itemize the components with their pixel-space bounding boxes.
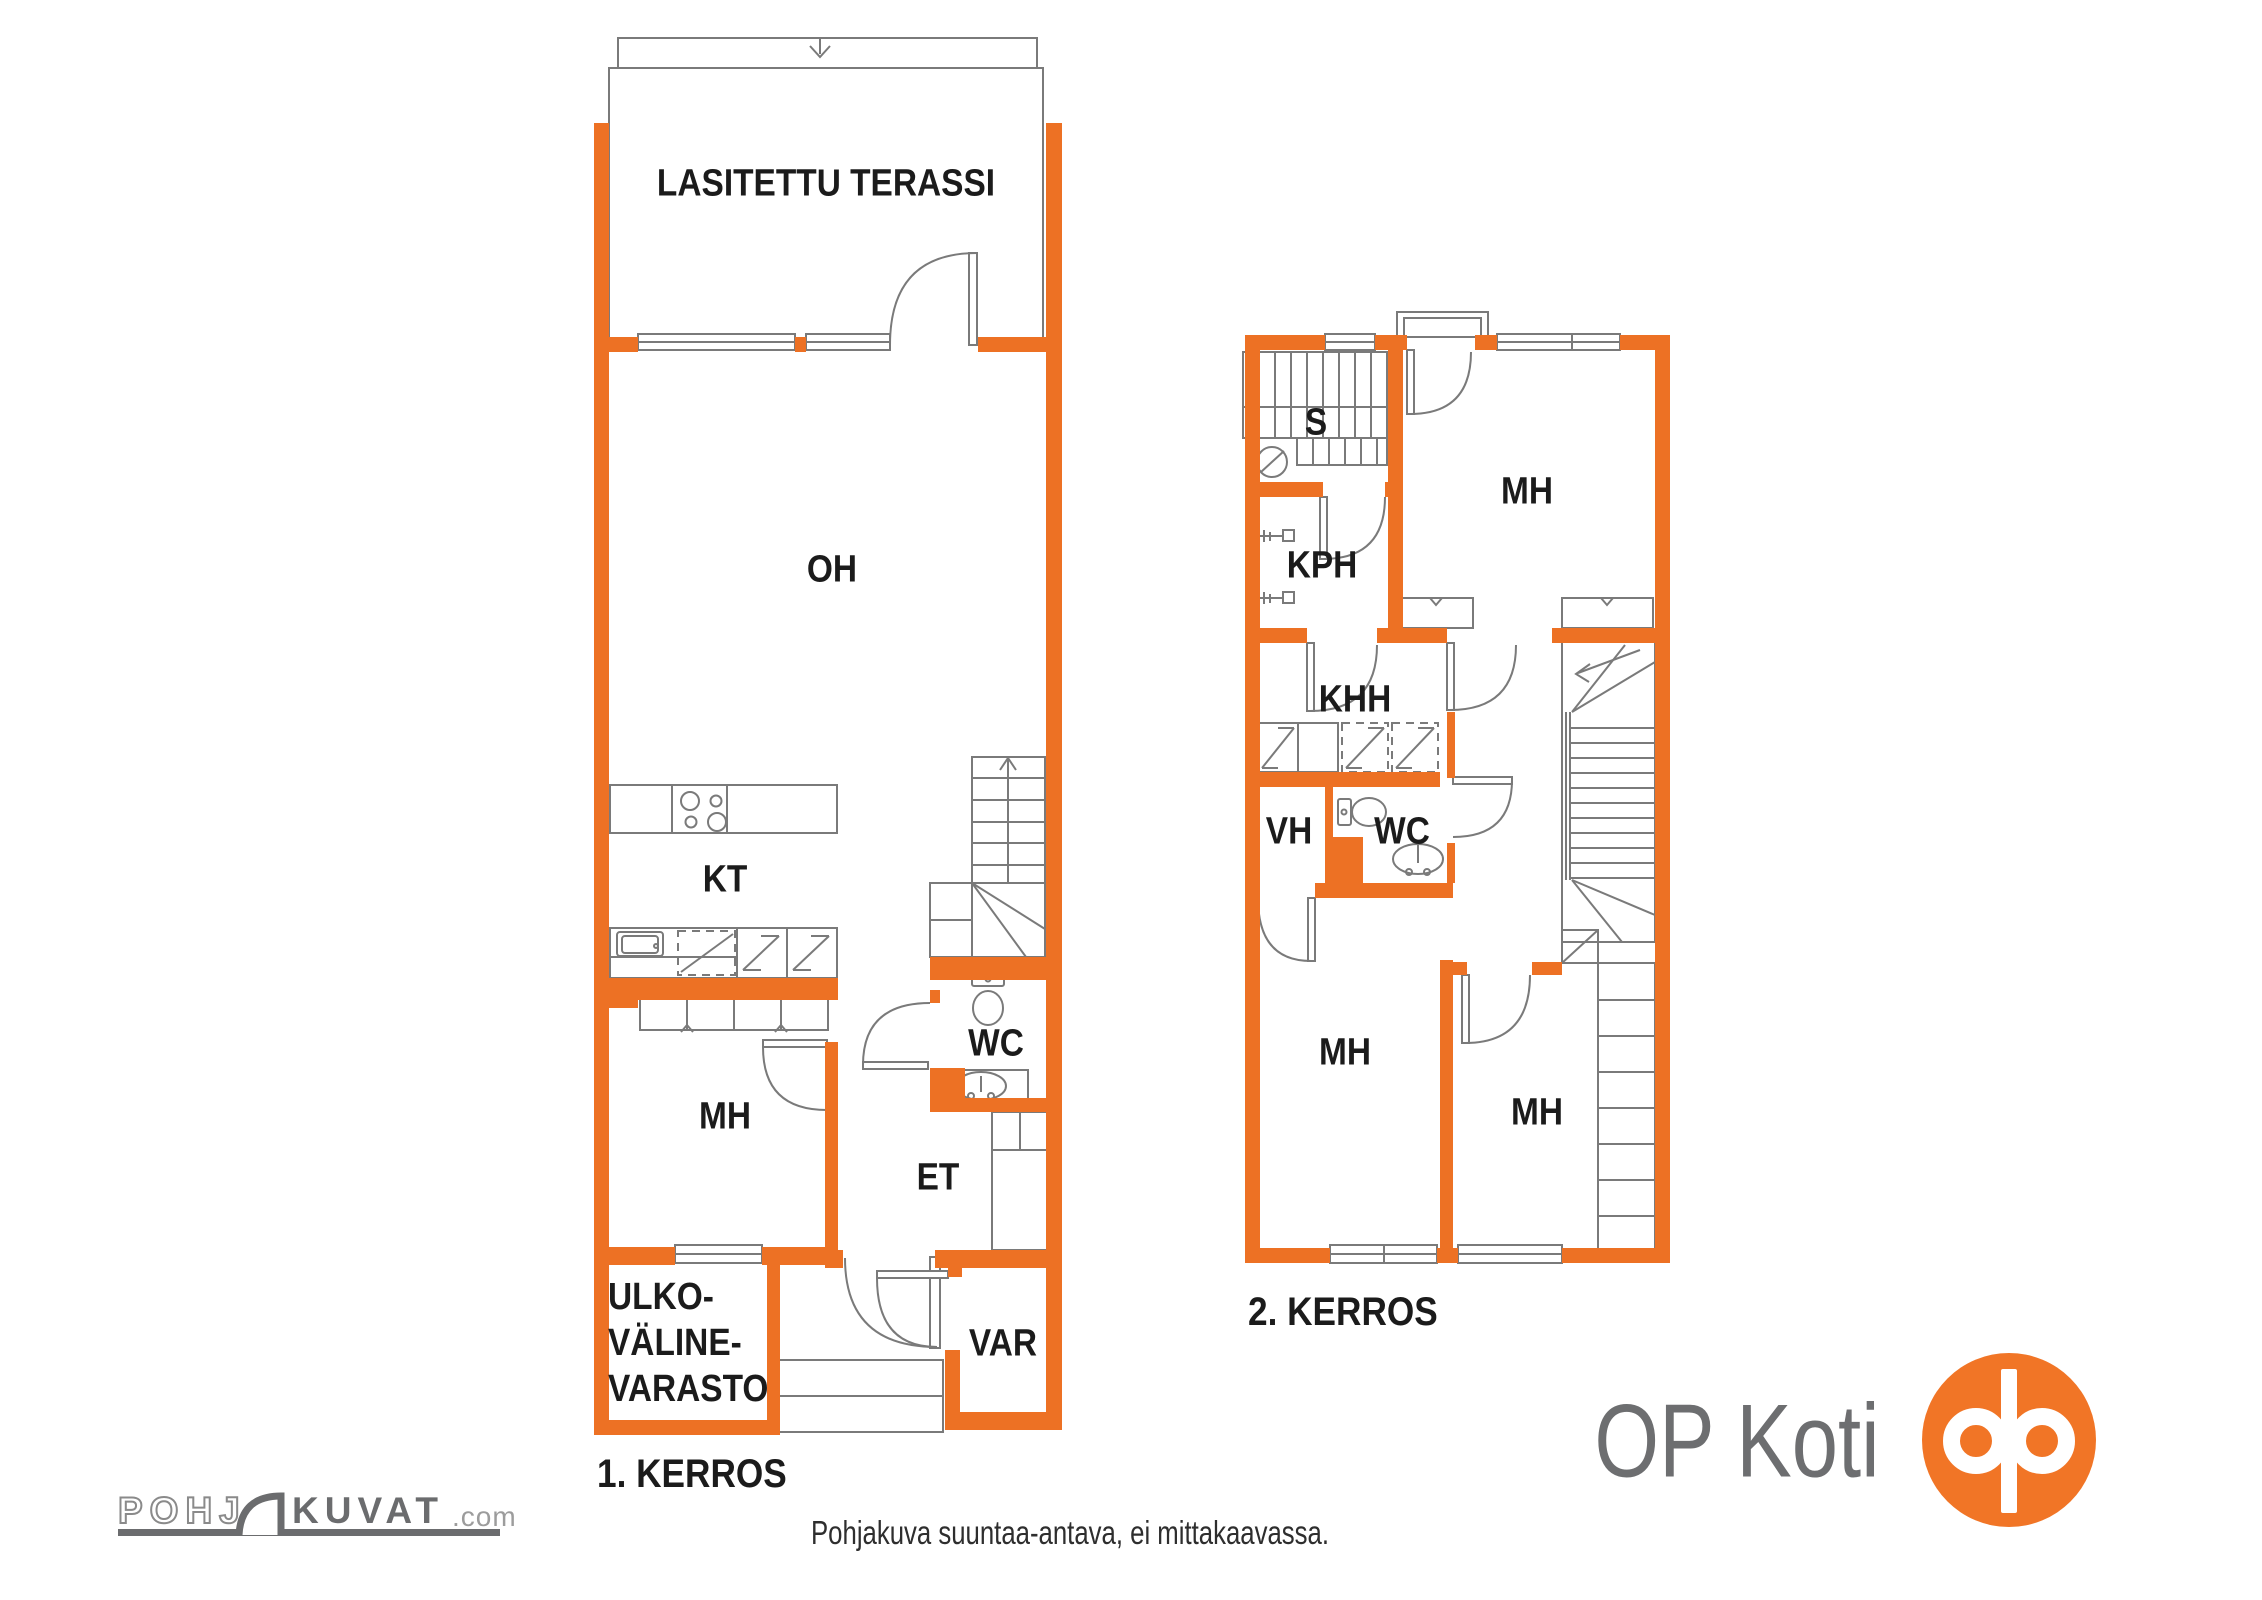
room-label-terrace: LASITETTU TERASSI	[657, 163, 995, 206]
outdoor-storage-line1: ULKO-	[608, 1274, 768, 1320]
room-label-living: OH	[807, 549, 857, 592]
room-label-bathroom: KPH	[1287, 545, 1358, 588]
pohjakuvat-logo-com: .com	[452, 1501, 517, 1533]
room-label-hall: ET	[917, 1157, 960, 1200]
room-label-bedroom-top: MH	[1501, 471, 1553, 514]
floor1-title: 1. KERROS	[597, 1452, 787, 1497]
pohjakuvat-logo-solid: KUVAT	[292, 1490, 444, 1532]
room-label-closet: VH	[1266, 811, 1312, 854]
room-label-var: VAR	[969, 1323, 1037, 1366]
pohjakuvat-logo-outline: POHJ	[118, 1490, 247, 1532]
room-label-bedroom-right: MH	[1511, 1092, 1563, 1135]
room-label-bedroom-f1: MH	[699, 1096, 751, 1139]
room-label-sauna: S	[1305, 402, 1327, 445]
floor2-title: 2. KERROS	[1248, 1290, 1438, 1335]
room-label-kitchen: KT	[703, 859, 748, 902]
floorplan-page: LASITETTU TERASSI OH KT MH WC ET VAR ULK…	[0, 0, 2262, 1600]
room-label-utility: KHH	[1319, 679, 1391, 722]
room-label-outdoor-storage: ULKO- VÄLINE- VARASTO	[608, 1274, 768, 1412]
floor1-plan	[594, 38, 1062, 1435]
disclaimer-text: Pohjakuva suuntaa-antava, ei mittakaavas…	[811, 1514, 1329, 1552]
room-label-bedroom-left: MH	[1319, 1032, 1371, 1075]
opkoti-logo-text: OP Koti	[1594, 1383, 1879, 1502]
room-label-wc-f2: WC	[1374, 811, 1430, 854]
floor2-plan	[1243, 312, 1670, 1263]
outdoor-storage-line2: VÄLINE-	[608, 1320, 768, 1366]
room-label-wc-f1: WC	[968, 1023, 1024, 1066]
outdoor-storage-line3: VARASTO	[608, 1366, 768, 1412]
op-logo-icon	[1922, 1353, 2096, 1527]
floor2-walls	[1245, 335, 1670, 1263]
